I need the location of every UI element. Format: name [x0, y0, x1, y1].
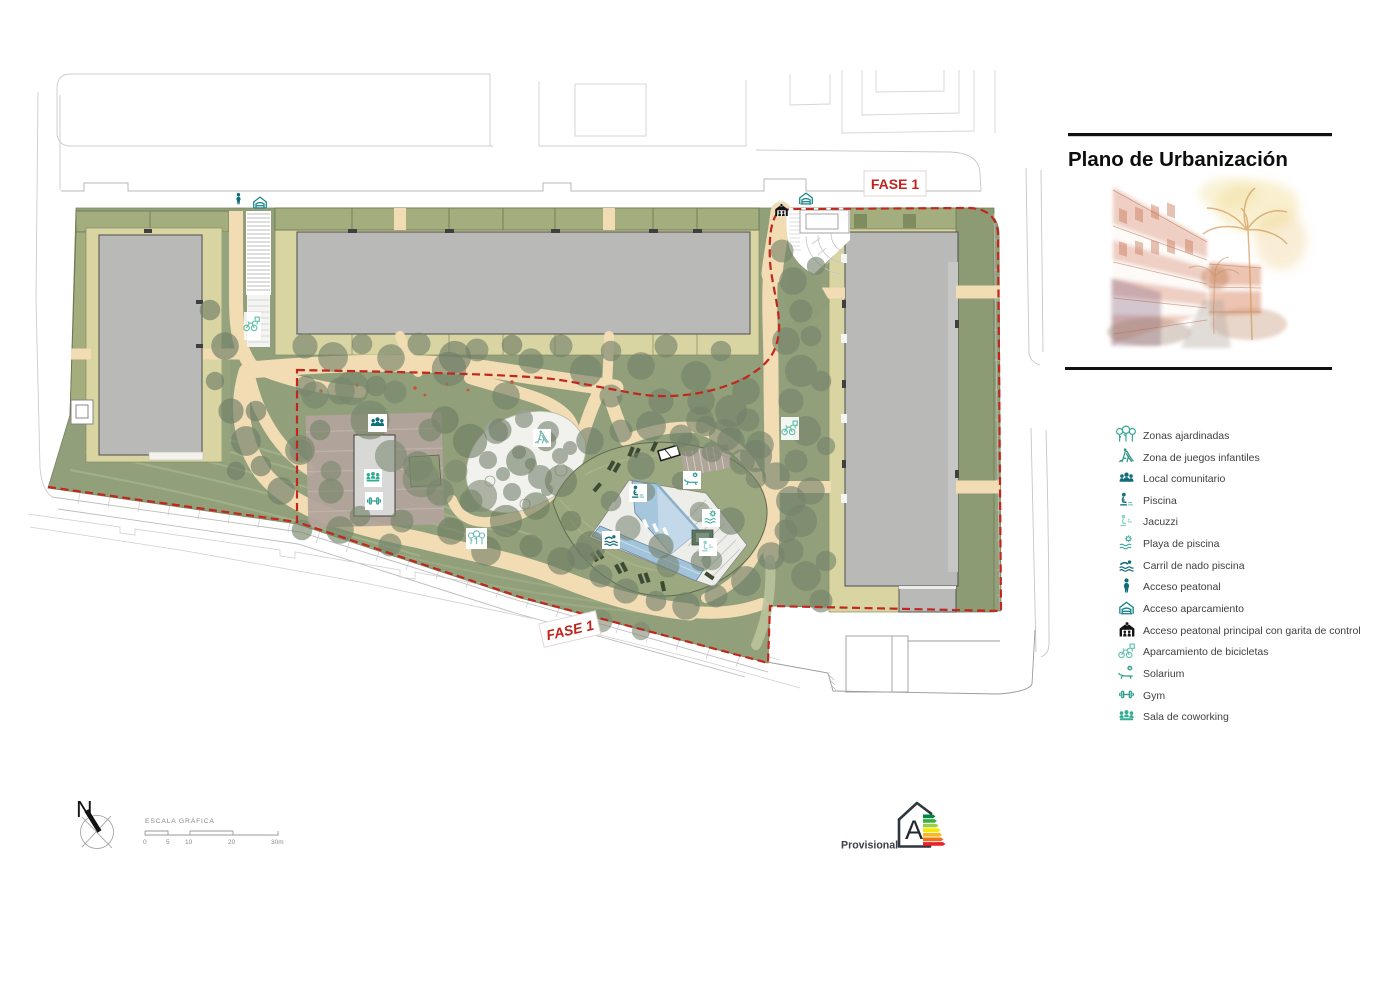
svg-text:Gym: Gym	[1143, 690, 1165, 702]
svg-text:Acceso peatonal principal con: Acceso peatonal principal con garita de …	[1143, 625, 1361, 637]
svg-text:Plano de Urbanización: Plano de Urbanización	[1068, 148, 1288, 171]
svg-text:0: 0	[143, 839, 147, 846]
svg-text:Jacuzzi: Jacuzzi	[1143, 516, 1178, 528]
svg-text:10: 10	[185, 839, 193, 846]
svg-text:5: 5	[166, 839, 170, 846]
svg-text:20: 20	[228, 839, 236, 846]
svg-text:Zonas ajardinadas: Zonas ajardinadas	[1143, 430, 1229, 442]
svg-text:30m: 30m	[271, 839, 284, 846]
svg-text:FASE 1: FASE 1	[871, 176, 919, 192]
svg-text:Playa de piscina: Playa de piscina	[1143, 538, 1220, 550]
svg-text:Piscina: Piscina	[1143, 495, 1177, 507]
svg-text:Provisional: Provisional	[841, 840, 898, 852]
svg-text:Solarium: Solarium	[1143, 668, 1185, 680]
svg-text:ESCALA GRÁFICA: ESCALA GRÁFICA	[145, 816, 215, 825]
svg-text:Sala de coworking: Sala de coworking	[1143, 711, 1229, 723]
svg-text:Acceso aparcamiento: Acceso aparcamiento	[1143, 603, 1244, 615]
svg-text:Carril de nado piscina: Carril de nado piscina	[1143, 560, 1245, 572]
svg-text:A: A	[905, 815, 923, 845]
svg-text:Acceso peatonal: Acceso peatonal	[1143, 581, 1221, 593]
svg-text:Zona de juegos infantiles: Zona de juegos infantiles	[1143, 452, 1260, 464]
svg-text:Aparcamiento de bicicletas: Aparcamiento de bicicletas	[1143, 646, 1268, 658]
svg-text:Local comunitario: Local comunitario	[1143, 473, 1225, 485]
